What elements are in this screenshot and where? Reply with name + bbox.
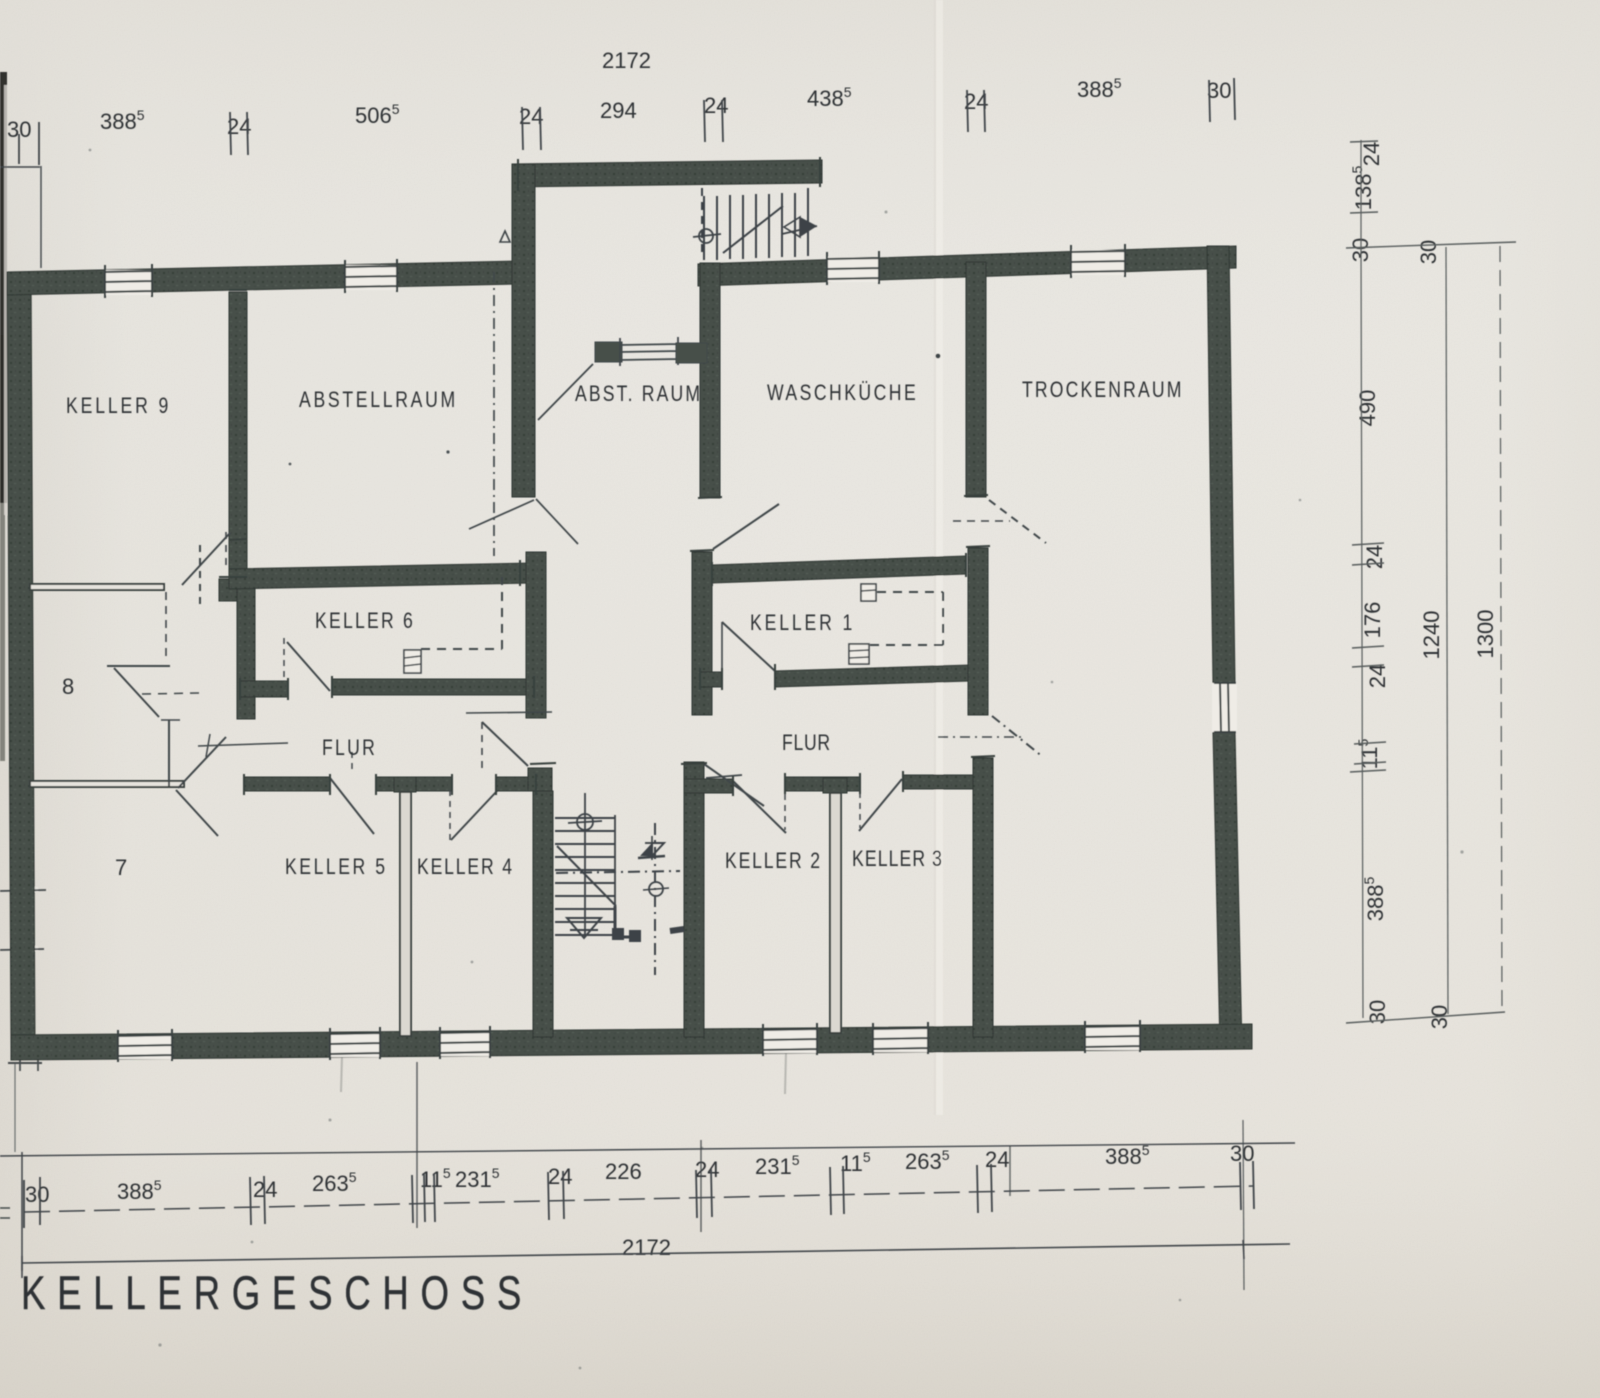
svg-text:24: 24 <box>1362 545 1387 569</box>
svg-text:24: 24 <box>1359 142 1384 166</box>
svg-text:30: 30 <box>1207 78 1231 103</box>
svg-text:7: 7 <box>115 855 127 880</box>
svg-text:1300: 1300 <box>1473 610 1498 659</box>
svg-text:30: 30 <box>1230 1141 1254 1166</box>
svg-text:8: 8 <box>62 674 74 699</box>
svg-text:KELLER 1: KELLER 1 <box>750 611 855 635</box>
svg-text:KELLER 4: KELLER 4 <box>417 855 514 879</box>
svg-text:490: 490 <box>1355 390 1380 427</box>
svg-text:24: 24 <box>985 1147 1009 1172</box>
svg-text:2172: 2172 <box>602 48 651 73</box>
svg-text:24: 24 <box>1365 664 1390 688</box>
svg-text:KELLER 6: KELLER 6 <box>315 609 415 633</box>
svg-text:KELLER 3: KELLER 3 <box>852 847 943 871</box>
svg-text:KELLER 9: KELLER 9 <box>66 394 171 418</box>
svg-text:294: 294 <box>600 98 637 123</box>
svg-text:226: 226 <box>605 1159 642 1184</box>
svg-text:KELLER 2: KELLER 2 <box>725 849 822 873</box>
svg-text:24: 24 <box>704 93 728 118</box>
svg-text:KELLERGESCHOSS: KELLERGESCHOSS <box>21 1267 533 1319</box>
svg-text:1240: 1240 <box>1419 611 1444 660</box>
svg-text:24: 24 <box>548 1164 572 1189</box>
svg-text:2172: 2172 <box>622 1235 671 1260</box>
svg-text:30: 30 <box>25 1182 49 1207</box>
svg-text:ABST. RAUM: ABST. RAUM <box>575 382 702 406</box>
svg-text:176: 176 <box>1360 602 1385 639</box>
svg-text:ABSTELLRAUM: ABSTELLRAUM <box>299 388 458 412</box>
svg-text:FLUR: FLUR <box>782 731 831 755</box>
svg-text:KELLER 5: KELLER 5 <box>285 855 388 879</box>
svg-text:FLUR: FLUR <box>322 736 377 760</box>
svg-text:30: 30 <box>1416 240 1441 264</box>
svg-text:WASCHKÜCHE: WASCHKÜCHE <box>767 381 918 405</box>
svg-text:24: 24 <box>695 1157 719 1182</box>
svg-text:TROCKENRAUM: TROCKENRAUM <box>1022 378 1184 402</box>
